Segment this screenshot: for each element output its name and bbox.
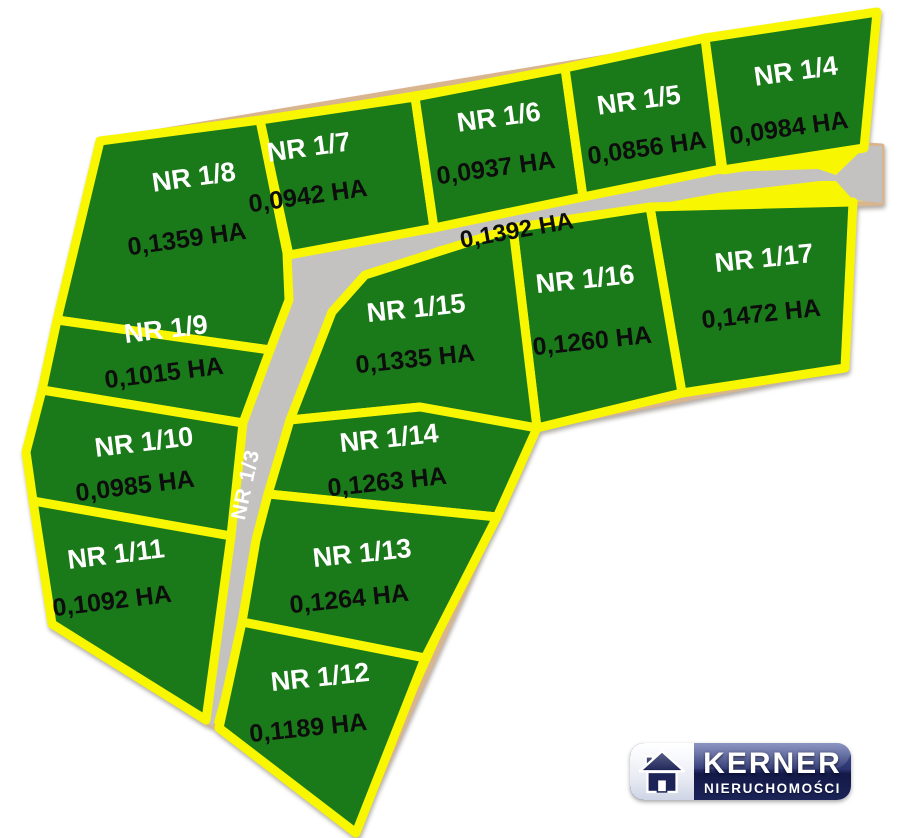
parcel-map-flyer: NR 1/80,1359 HANR 1/70,0942 HANR 1/60,09… (0, 0, 900, 838)
plot-nr-1-6 (415, 68, 583, 228)
logo-text-panel: KERNER NIERUCHOMOŚCI (694, 743, 851, 800)
logo-brand-text: KERNER (703, 749, 842, 779)
parcel-map: NR 1/80,1359 HANR 1/70,0942 HANR 1/60,09… (0, 0, 900, 838)
house-icon (639, 750, 685, 794)
kerner-logo: KERNER NIERUCHOMOŚCI (630, 743, 851, 800)
plot-nr-1-5 (565, 38, 721, 197)
logo-house-panel (630, 743, 694, 800)
logo-subtitle-text: NIERUCHOMOŚCI (704, 782, 841, 796)
